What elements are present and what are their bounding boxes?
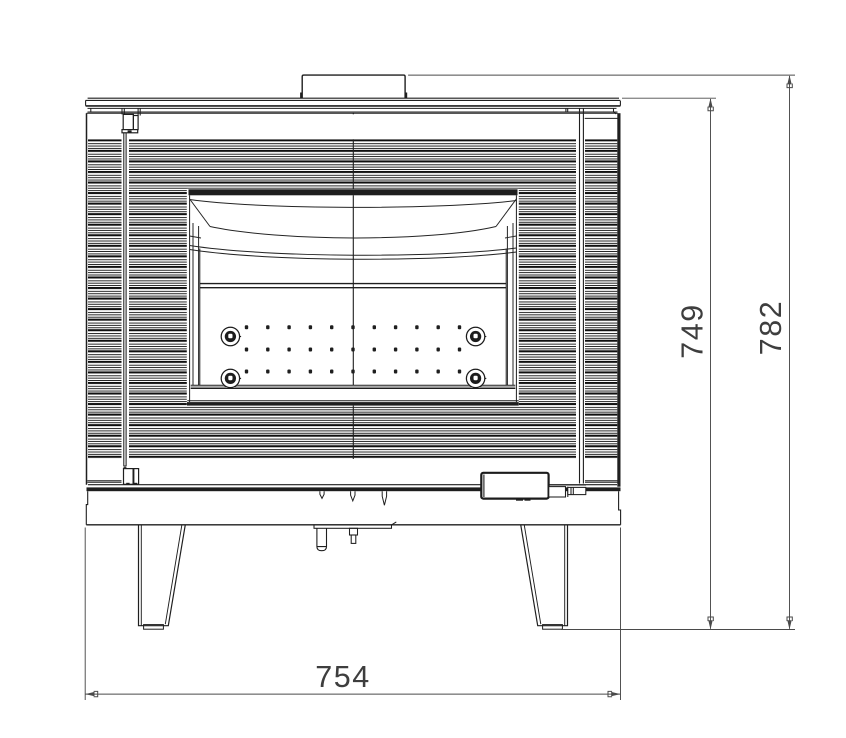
svg-text:754: 754 [315,660,370,694]
svg-text:782: 782 [754,300,788,355]
svg-text:749: 749 [676,303,710,358]
